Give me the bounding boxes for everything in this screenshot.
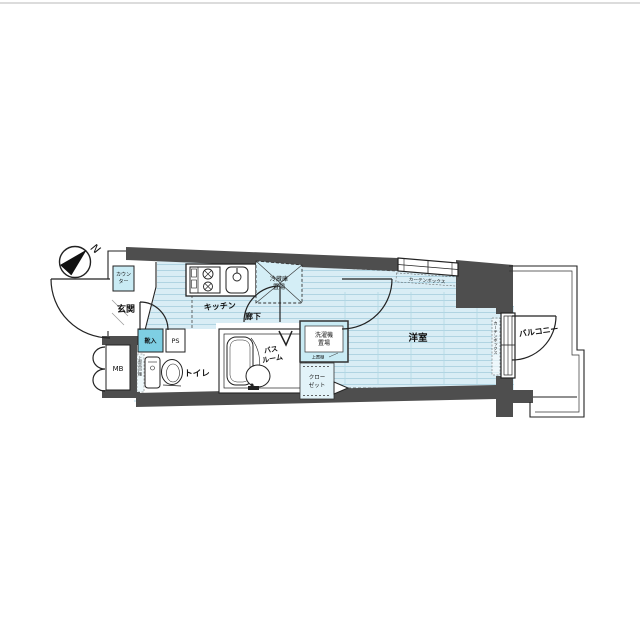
western-room-label: 洋室 — [408, 332, 428, 344]
closet-label-2: ゼット — [309, 381, 326, 389]
kitchen-counter — [186, 264, 256, 296]
toilet-label: トイレ — [184, 369, 210, 379]
curtain-box-side: カーテンボックス — [492, 318, 500, 375]
wall-mb-bottom — [102, 390, 140, 398]
pipe-space-label: PS — [171, 337, 179, 345]
toilet-shelf-label: 上部吊戸棚 — [138, 355, 143, 377]
sink-icon — [226, 267, 248, 293]
washer-shelf-label: 上置棚 — [312, 354, 325, 361]
wall-right-lower — [496, 376, 533, 417]
washer-space: 洗濯機 置場 上置棚 — [300, 321, 348, 362]
meter-box-label: MB — [113, 365, 124, 373]
wall-top-right-block — [456, 260, 513, 314]
balcony-label: バルコニー — [518, 324, 559, 338]
bathroom: バス ルーム — [219, 329, 306, 393]
shoe-cabinet-label: 靴入 — [144, 337, 156, 345]
floorplan-svg: N — [0, 0, 640, 630]
floorplan-page: N — [0, 0, 640, 630]
stove-icon — [190, 267, 220, 293]
refrigerator-space: 冷蔵庫 置場 — [256, 261, 302, 303]
refrigerator-label-1: 冷蔵庫 — [270, 275, 288, 283]
curtain-box-side-label: カーテンボックス — [494, 321, 499, 355]
washer-label-2: 置場 — [318, 339, 330, 347]
page-top-rule — [0, 2, 640, 4]
closet-label-1: クロー — [309, 374, 326, 381]
washer-label-1: 洗濯機 — [315, 331, 333, 339]
counter-label-2: ター — [118, 278, 128, 285]
entrance-label: 玄関 — [117, 303, 135, 315]
compass-icon: N — [60, 241, 103, 277]
counter-label-1: カウン — [116, 271, 131, 278]
meter-box: MB — [93, 345, 130, 391]
corridor-label: 廊下 — [245, 311, 261, 321]
refrigerator-label-2: 置場 — [273, 283, 285, 291]
compass-n-label: N — [88, 241, 103, 256]
entry-door-arc — [51, 279, 110, 338]
toilet-shelf-strip: 上部吊戸棚 — [137, 354, 144, 392]
counter-cabinet: カウン ター — [113, 266, 134, 291]
balcony-window — [501, 313, 515, 378]
